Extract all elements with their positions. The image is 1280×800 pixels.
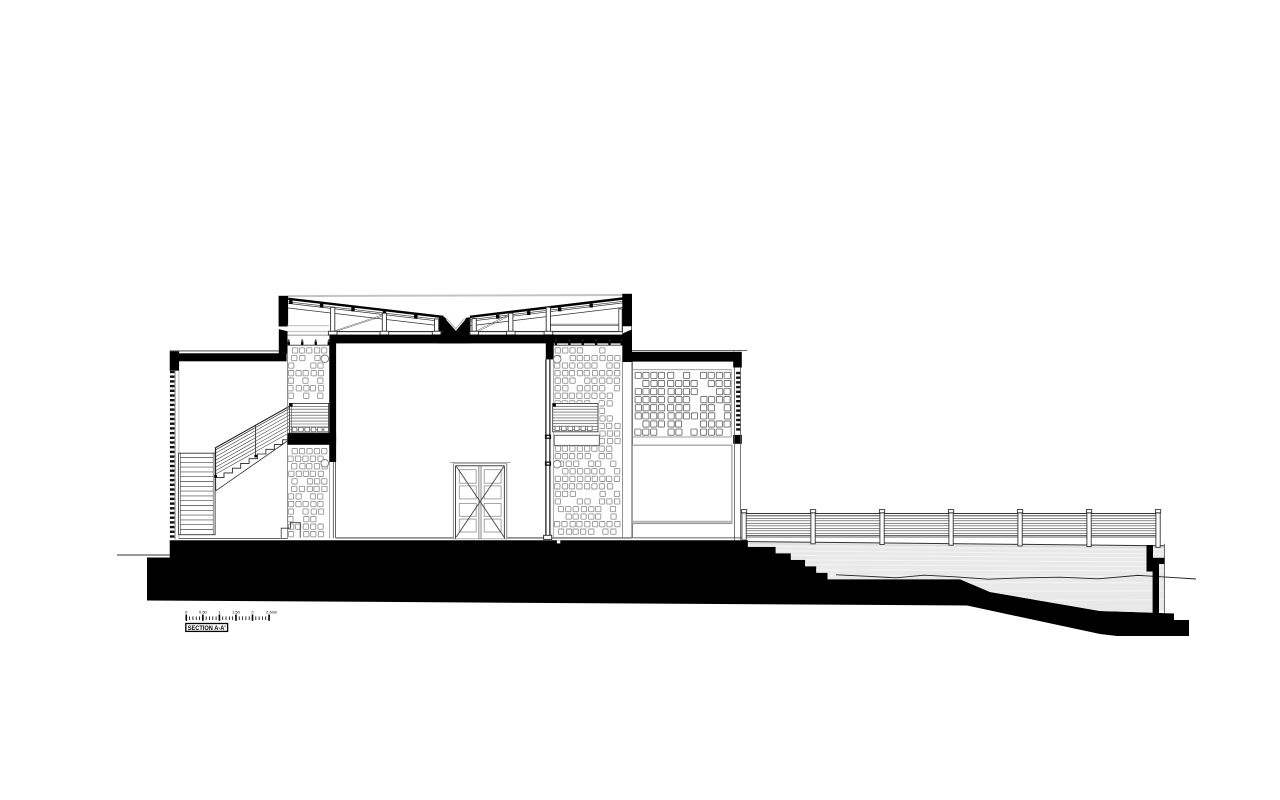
svg-text:0.50: 0.50 <box>199 609 208 614</box>
svg-text:2.50m: 2.50m <box>266 609 278 614</box>
svg-text:SECTION A-A': SECTION A-A' <box>188 625 226 632</box>
svg-text:1.50: 1.50 <box>232 609 241 614</box>
